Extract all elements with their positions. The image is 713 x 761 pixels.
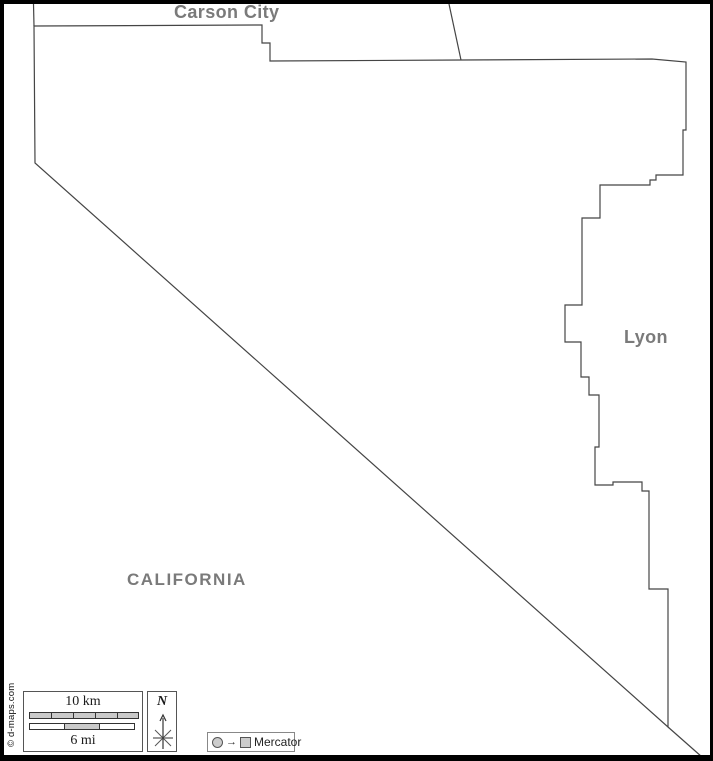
scale-tick xyxy=(64,724,65,729)
county-outline-path xyxy=(34,25,686,727)
scale-tick xyxy=(117,713,118,718)
scale-tick xyxy=(95,713,96,718)
label-lyon: Lyon xyxy=(624,327,668,348)
scale-mi-label: 6 mi xyxy=(24,733,142,749)
compass-icon xyxy=(151,712,175,750)
scale-km-label: 10 km xyxy=(24,694,142,710)
carson-lyon-border-path xyxy=(449,4,461,60)
projection-name: Mercator xyxy=(254,735,301,749)
label-california: CALIFORNIA xyxy=(127,570,247,590)
scale-bar-mi-middle-segment xyxy=(65,724,100,729)
projection-legend: → Mercator xyxy=(207,732,295,752)
globe-circle-icon xyxy=(212,737,223,748)
copyright-text: © d-maps.com xyxy=(6,683,17,747)
scale-bar-mi xyxy=(29,723,135,730)
arrow-right-icon: → xyxy=(226,737,237,748)
california-border-extension-path xyxy=(668,727,702,757)
boundary-lines-layer xyxy=(0,0,713,761)
projected-square-icon xyxy=(240,737,251,748)
north-label: N xyxy=(148,694,176,710)
scale-tick xyxy=(73,713,74,718)
scale-bar-box: 10 km 6 mi xyxy=(23,691,143,752)
carson-city-west-border-path xyxy=(34,4,35,26)
scale-tick xyxy=(99,724,100,729)
label-carson-city: Carson City xyxy=(174,2,279,23)
scale-tick xyxy=(51,713,52,718)
north-arrow-box: N xyxy=(147,691,177,752)
scale-bar-km xyxy=(29,712,139,719)
map-canvas: Carson City Lyon CALIFORNIA 10 km 6 mi N… xyxy=(0,0,713,761)
